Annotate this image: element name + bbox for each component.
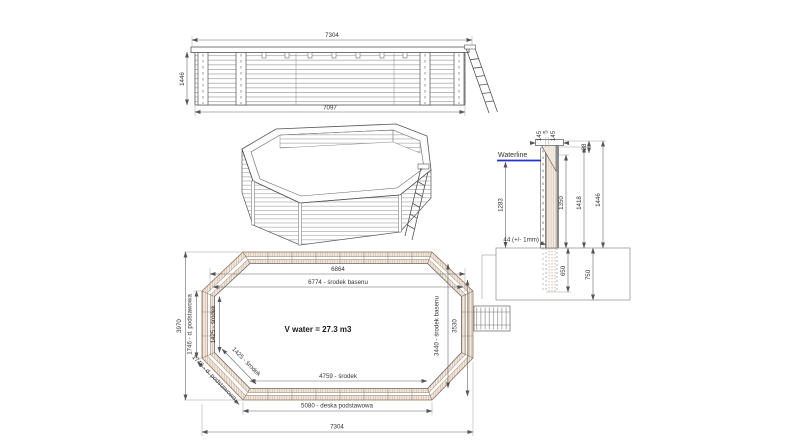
elevation-dim-left: 1446 xyxy=(179,72,186,86)
plan-view: V water = 27.3 m3 6864 6774 - środek bas… xyxy=(176,252,510,436)
section-dim-depth: 1283 xyxy=(498,198,505,212)
section-dim-1350: 1350 xyxy=(558,196,565,210)
elevation-dim-bottom: 7097 xyxy=(323,105,337,112)
elevation-ladder xyxy=(465,45,498,113)
pool-technical-drawing: 7304 1446 7097 xyxy=(0,0,794,446)
elevation-dim-top: 7304 xyxy=(325,32,339,39)
isometric-view xyxy=(242,124,431,245)
plan-dim-6774: 6774 - środek basenu xyxy=(308,279,368,286)
section-dim-cap-right: 145 xyxy=(550,130,557,141)
plan-dim-3440: 3440 - środek basenu xyxy=(434,296,441,356)
drawing-sheet: 7304 1446 7097 xyxy=(0,0,794,446)
plan-dim-1425-left: 1425 - środek xyxy=(210,305,217,344)
section-dim-1446: 1446 xyxy=(595,193,602,207)
section-dim-cap-height: 28 xyxy=(581,143,588,150)
plan-dim-1746-left: 1746 - d. podstawowa xyxy=(187,294,194,355)
elevation-coping xyxy=(191,47,469,53)
plan-dim-4759: 4759 - środek xyxy=(319,373,358,380)
plan-volume-label: V water = 27.3 m3 xyxy=(285,325,352,334)
section-dim-650: 650 xyxy=(560,265,567,276)
elevation-view: 7304 1446 7097 xyxy=(179,32,498,116)
section-dim-plank: 44 (+/- 1mm) xyxy=(503,237,539,244)
plan-dim-5080: 5080 - deska podstawowa xyxy=(301,403,373,410)
section-dim-1418: 1418 xyxy=(576,196,583,210)
plan-dim-3530: 3530 xyxy=(452,319,459,333)
plan-dim-7304: 7304 xyxy=(330,424,344,431)
section-view: Waterline 145 5 145 28 1283 44 (+/- 1mm)… xyxy=(482,130,630,300)
plan-dim-3970: 3970 xyxy=(176,319,183,333)
plan-ladder xyxy=(474,306,510,331)
section-dim-cap-mid: 5 xyxy=(543,130,550,134)
waterline-label: Waterline xyxy=(498,152,527,159)
section-dim-750: 750 xyxy=(585,269,592,280)
plan-dim-6864: 6864 xyxy=(331,266,345,273)
